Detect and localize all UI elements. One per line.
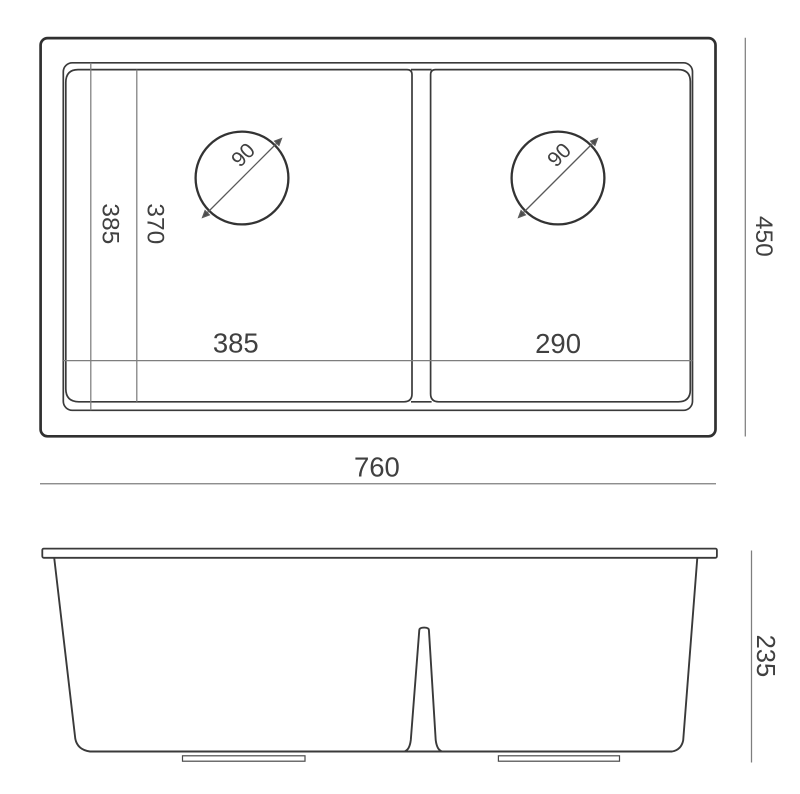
svg-text:290: 290: [535, 328, 581, 359]
svg-text:450: 450: [750, 216, 777, 257]
svg-text:385: 385: [96, 203, 123, 244]
svg-text:385: 385: [213, 327, 259, 358]
svg-text:235: 235: [751, 635, 779, 678]
svg-text:370: 370: [142, 203, 169, 244]
svg-text:760: 760: [354, 452, 400, 483]
